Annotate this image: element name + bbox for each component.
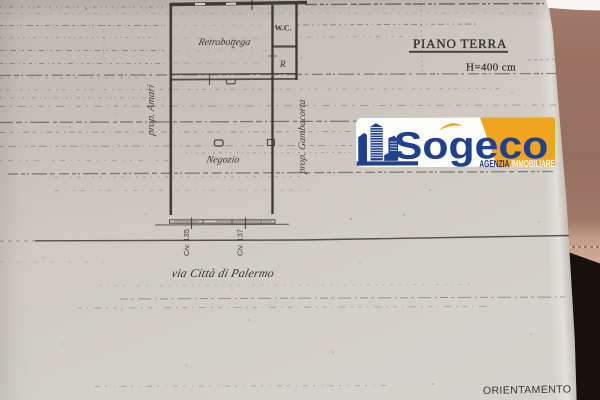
svg-text:W.C.: W.C. <box>275 24 292 33</box>
svg-text:IMMOBILIARE: IMMOBILIARE <box>511 159 555 170</box>
svg-text:Civ. 135: Civ. 135 <box>182 229 191 256</box>
svg-text:PIANO TERRA: PIANO TERRA <box>413 36 507 51</box>
svg-text:prop. Gambacorta: prop. Gambacorta <box>297 99 308 176</box>
svg-text:AGENZIA: AGENZIA <box>479 159 509 170</box>
svg-text:R: R <box>279 59 286 69</box>
svg-text:Civ. 137: Civ. 137 <box>236 229 245 256</box>
svg-text:ORIENTAMENTO: ORIENTAMENTO <box>483 383 572 397</box>
svg-text:H=400 cm: H=400 cm <box>466 62 516 74</box>
svg-text:Negozio: Negozio <box>204 155 240 166</box>
svg-text:Retrobottega: Retrobottega <box>196 37 251 48</box>
svg-text:prop. Amari: prop. Amari <box>146 84 157 138</box>
svg-text:via Città di Palermo: via Città di Palermo <box>170 266 275 280</box>
